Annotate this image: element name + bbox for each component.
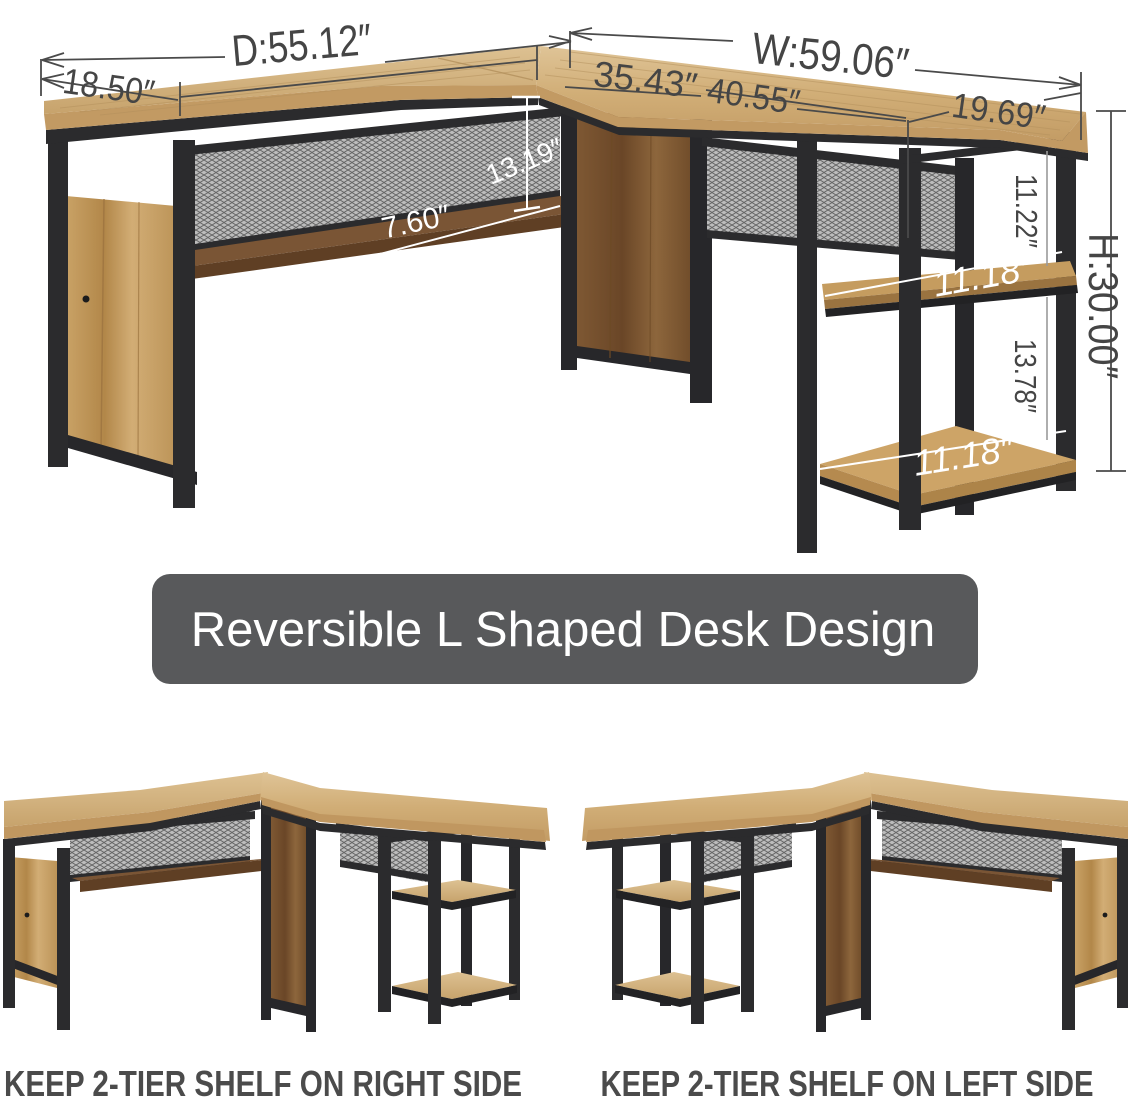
svg-text:13.78″: 13.78″ bbox=[1008, 339, 1043, 413]
svg-text:H:30.00″: H:30.00″ bbox=[1080, 233, 1127, 379]
svg-text:KEEP 2-TIER SHELF ON RIGHT SID: KEEP 2-TIER SHELF ON RIGHT SIDE bbox=[4, 1063, 522, 1104]
svg-text:Reversible L Shaped Desk Desig: Reversible L Shaped Desk Design bbox=[191, 603, 935, 657]
svg-text:11.22″: 11.22″ bbox=[1009, 174, 1044, 248]
svg-text:KEEP 2-TIER SHELF ON LEFT SIDE: KEEP 2-TIER SHELF ON LEFT SIDE bbox=[601, 1063, 1094, 1104]
